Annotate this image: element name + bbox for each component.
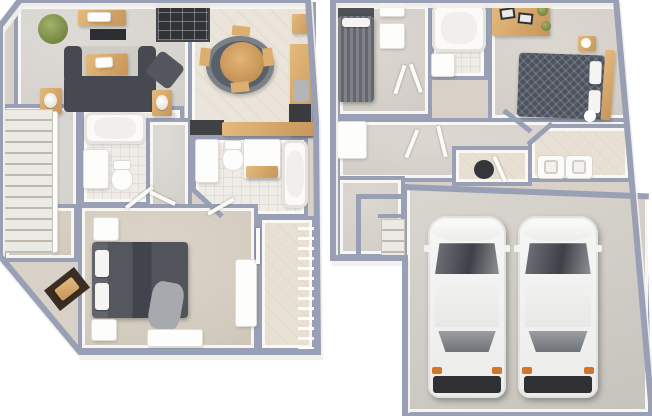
car-2-tail-r [584, 367, 594, 374]
bed-3-queen-pillow-a [589, 61, 603, 84]
toilet-2 [223, 148, 243, 170]
car-1-mirror-r [502, 245, 510, 252]
kitchen-counter-bottom [222, 122, 316, 136]
bed-2-twin [338, 16, 374, 102]
car-2-mirror-l [514, 245, 522, 252]
car-2-roof [525, 276, 591, 327]
dining-chair-east [262, 48, 274, 67]
car-2-hood [524, 220, 591, 242]
car-2-rear [528, 331, 587, 353]
dining-chair-north [232, 25, 251, 37]
end-table-left-lamp [44, 93, 57, 108]
stairwell-wall-a [356, 194, 406, 199]
stairwell-wall-b [356, 194, 361, 258]
end-table-right [152, 90, 172, 116]
vanity-1 [84, 150, 108, 188]
staircase-1 [4, 110, 52, 252]
stairwell-wall-c [378, 214, 406, 218]
kitchen-shelf [292, 14, 312, 34]
dining-chair-west [199, 48, 211, 67]
nightstand-a [94, 218, 118, 240]
closet-1-door [256, 228, 260, 264]
toilet-1-tank [114, 161, 129, 170]
nightstand-b [92, 320, 116, 340]
car-2 [518, 216, 598, 398]
dryer [566, 156, 592, 178]
car-1-tail-r [492, 367, 502, 374]
bathtub-2-basin [286, 151, 304, 197]
bathtub-3 [432, 4, 486, 52]
bed-1-pillow-b [95, 283, 109, 310]
car-1-tail-l [432, 367, 442, 374]
bathtub-2 [282, 140, 308, 208]
car-1-rear [438, 331, 496, 353]
car-2-bumper [524, 376, 593, 392]
toilet-1 [112, 168, 132, 190]
water-heater [474, 160, 494, 179]
floor-plan-scene [0, 0, 652, 416]
car-1-bumper [433, 376, 500, 392]
bathtub-1-basin [94, 117, 136, 139]
car-1 [428, 216, 506, 398]
bathtub-3-basin [441, 12, 478, 45]
toilet-2-tank [225, 141, 240, 150]
picture-frame-a [499, 7, 515, 20]
car-1-hood [434, 220, 500, 242]
tv-panel [90, 29, 126, 40]
closet-wire-shelf [298, 220, 314, 350]
lamp-a [581, 38, 591, 48]
end-table-right-lamp [156, 95, 168, 110]
sofa-left-arm [64, 46, 82, 78]
console-decor [88, 13, 110, 21]
car-2-mirror-r [594, 245, 602, 252]
bed-1-pillow-a [95, 250, 109, 277]
car-1-roof [435, 276, 499, 327]
bed-2-twin-pillow-a [342, 18, 369, 27]
car-1-mirror-l [424, 245, 432, 252]
kitchen-bench [190, 120, 224, 135]
car-2-tail-l [522, 367, 532, 374]
dresser-2 [380, 2, 404, 16]
kitchen-sink [293, 80, 309, 102]
coffee-table-papers [96, 57, 113, 67]
washer-door [544, 160, 559, 174]
sofa-body [64, 76, 156, 112]
car-1-windshield [435, 243, 499, 274]
staircase-2 [382, 220, 404, 256]
sink-2 [196, 140, 218, 182]
car-2-windshield [525, 243, 591, 274]
potted-plant [38, 14, 68, 44]
table-mirror [385, 28, 399, 42]
vanity-2-drawers [246, 166, 278, 178]
shelf-unit [156, 2, 210, 42]
lamp-b [584, 110, 596, 122]
linen-closet [338, 122, 366, 158]
bathtub-1 [84, 112, 146, 144]
closet-cabinet [236, 260, 256, 326]
stair-railing [52, 112, 57, 252]
desk-plant-a [537, 5, 548, 16]
dresser-1 [148, 330, 202, 346]
picture-frame-b [517, 12, 533, 25]
washer [538, 156, 564, 178]
dining-chair-south [231, 81, 250, 93]
vanity-3 [432, 54, 454, 76]
dining-table [220, 42, 264, 84]
dryer-door [572, 160, 587, 174]
desk-plant-b [541, 21, 551, 31]
